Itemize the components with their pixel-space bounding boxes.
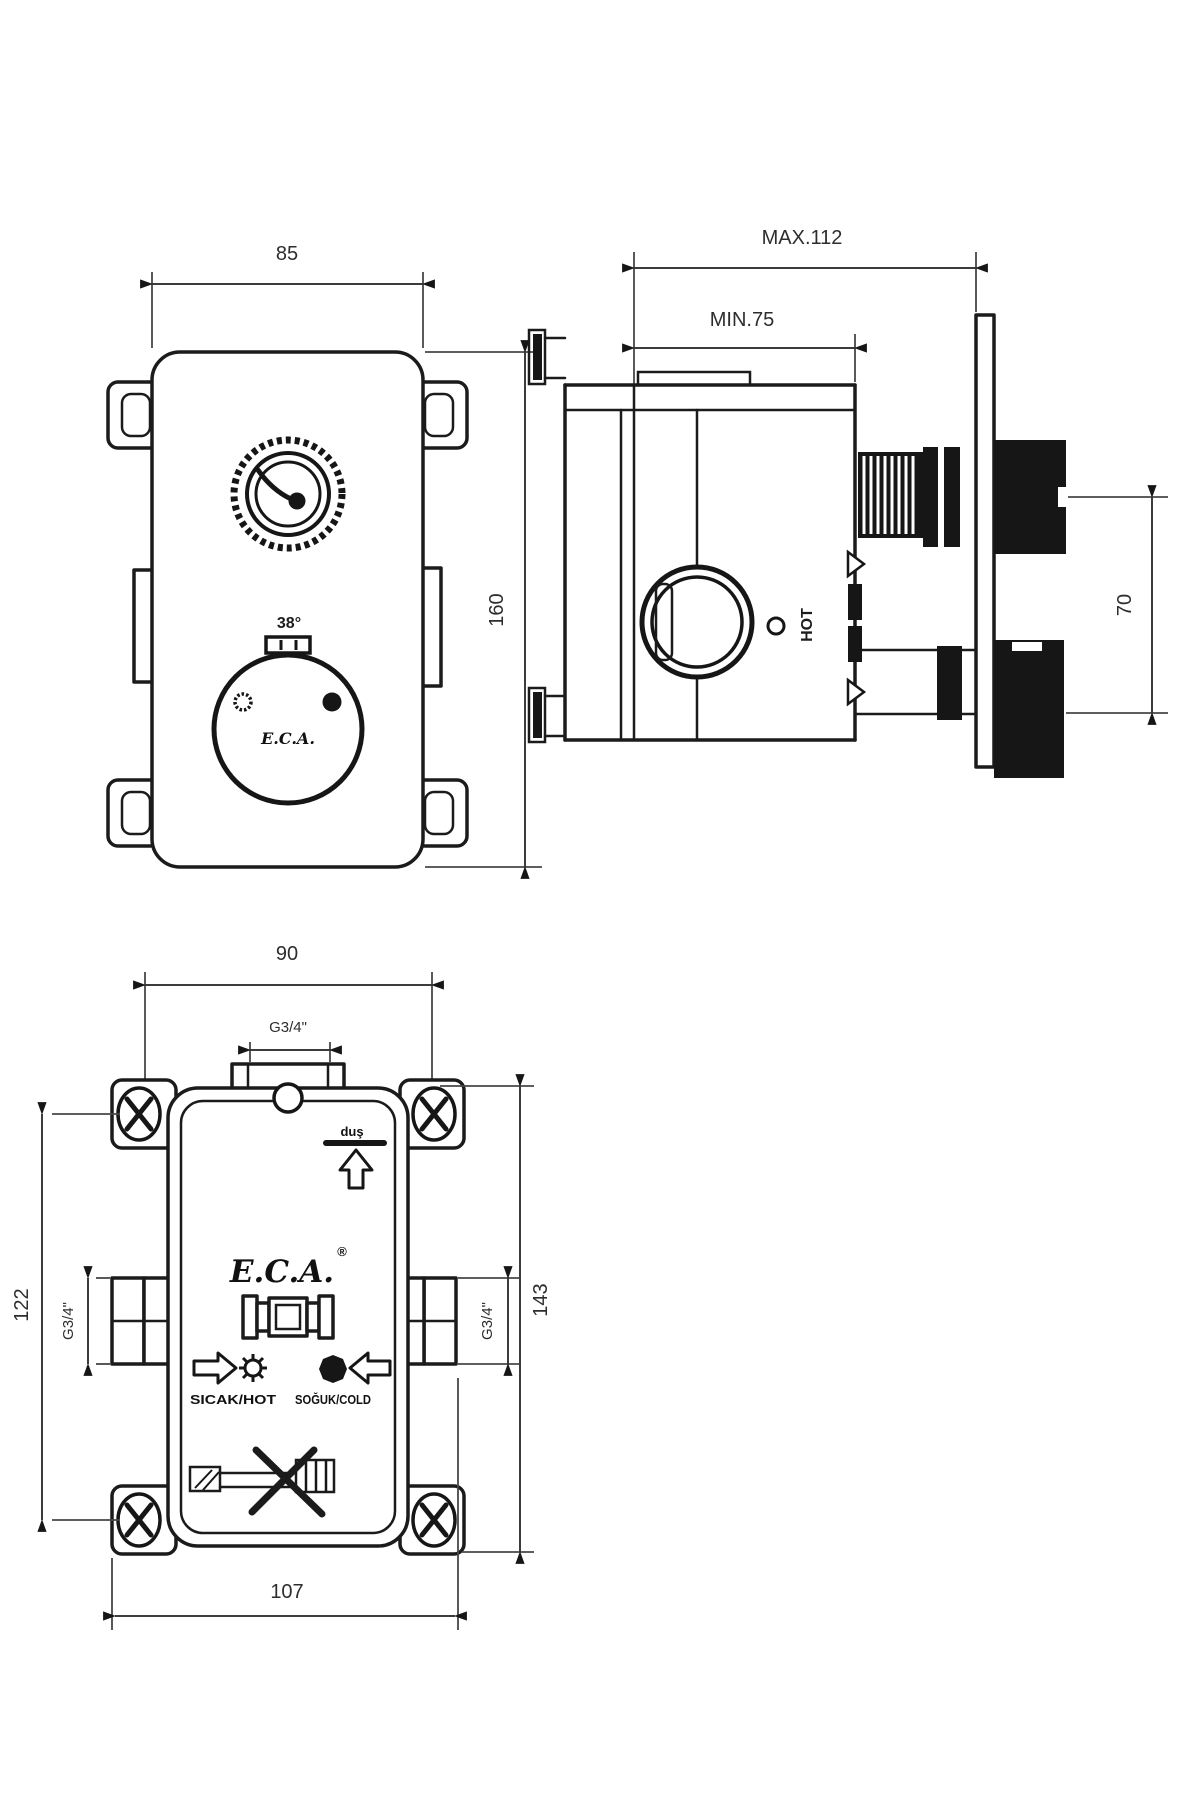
registered-mark: ® xyxy=(337,1244,347,1259)
front-height-dimension: 160 xyxy=(486,593,508,626)
shower-label: duş xyxy=(340,1124,363,1139)
front-width-dimension: 85 xyxy=(276,243,298,265)
temp-38-label: 38° xyxy=(277,615,301,632)
knob-spacing-dimension: 70 xyxy=(1114,594,1136,616)
front-view: 85 160 xyxy=(108,243,542,867)
hot-port-label: HOT xyxy=(799,608,816,642)
left-inlet-port xyxy=(112,1278,169,1364)
bottom-span-dimension: 107 xyxy=(270,1581,303,1603)
left-port-dimension: G3/4" xyxy=(60,1302,77,1340)
cold-inlet-label: SOĞUK/COLD xyxy=(295,1392,371,1407)
cold-dot-icon xyxy=(235,694,251,710)
body-height-dimension: 143 xyxy=(530,1283,552,1316)
eca-logo: E.C.A. xyxy=(229,1254,334,1290)
knob-logo-text: E.C.A. xyxy=(260,729,315,748)
flow-knob-side-icon xyxy=(858,440,1066,554)
hot-port-dot-icon xyxy=(768,618,784,634)
drawing-canvas: 85 160 xyxy=(0,0,1200,1800)
screw-height-dimension: 122 xyxy=(11,1288,33,1321)
screw-span-dimension: 90 xyxy=(276,943,298,965)
side-port-circle xyxy=(642,410,752,740)
right-inlet-port xyxy=(407,1278,456,1364)
side-mounting-tab-bottom xyxy=(529,688,565,742)
hot-dot-icon xyxy=(323,693,342,712)
valve-technical-drawing: 85 160 xyxy=(0,0,1200,1800)
valve-body-side xyxy=(565,372,855,740)
max-depth-dimension: MAX.112 xyxy=(762,227,843,249)
top-port-dimension: G3/4" xyxy=(269,1019,307,1036)
union-coupling-icon xyxy=(243,1296,333,1338)
thermostat-knob-side-icon xyxy=(855,640,1064,778)
retainer-clip-icon xyxy=(848,626,862,662)
sun-icon xyxy=(239,1354,267,1382)
side-mounting-tab-top xyxy=(529,330,565,384)
retainer-clip-icon xyxy=(848,584,862,620)
top-screw-hole xyxy=(274,1084,302,1112)
wall-plate xyxy=(976,315,994,767)
back-view: 90 G3/4" xyxy=(11,943,552,1630)
side-view: MAX.112 MIN.75 xyxy=(529,227,1168,778)
right-port-dimension: G3/4" xyxy=(479,1302,496,1340)
hot-inlet-label: SICAK/HOT xyxy=(190,1392,276,1407)
snowflake-icon xyxy=(319,1355,347,1383)
min-depth-dimension: MIN.75 xyxy=(710,309,774,331)
